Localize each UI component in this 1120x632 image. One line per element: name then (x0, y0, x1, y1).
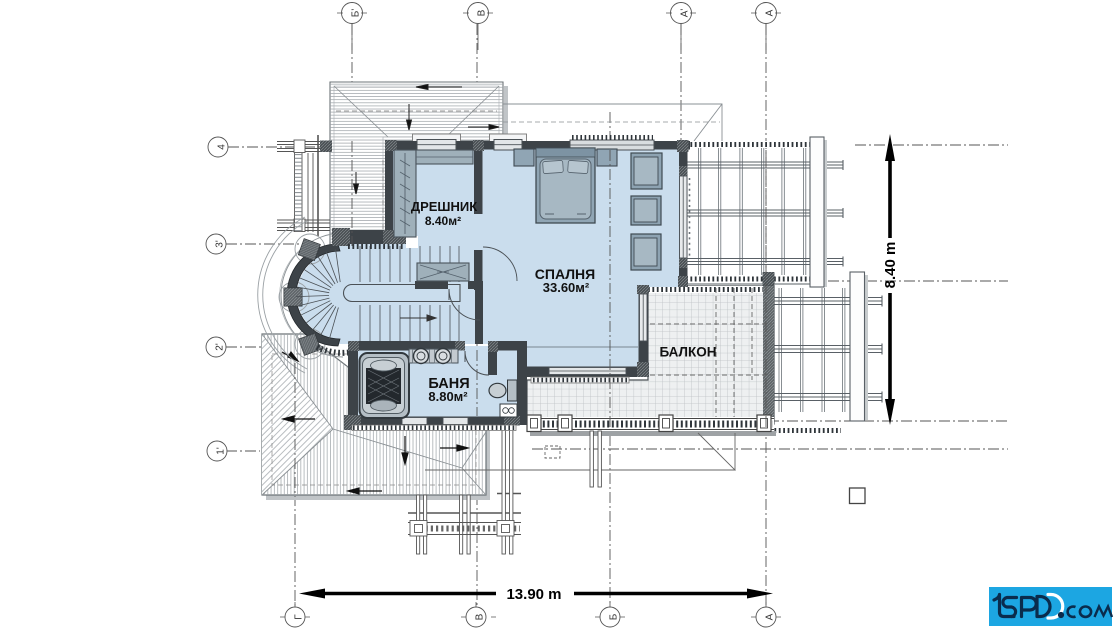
svg-text:В: В (477, 9, 488, 16)
svg-text:2': 2' (215, 343, 226, 351)
svg-text:А: А (765, 613, 776, 620)
svg-text:В: В (475, 613, 486, 620)
svg-text:8.40м²: 8.40м² (425, 214, 461, 228)
svg-text:Г: Г (294, 614, 305, 620)
svg-text:4: 4 (217, 144, 228, 150)
svg-text:8.40 m: 8.40 m (882, 242, 899, 289)
svg-text:ДРЕШНИК: ДРЕШНИК (411, 199, 477, 214)
svg-text:13.90 m: 13.90 m (506, 586, 561, 603)
svg-text:8.80м²: 8.80м² (428, 389, 468, 404)
svg-text:А: А (765, 9, 776, 16)
svg-text:А': А' (680, 9, 691, 18)
svg-text:БАЛКОН: БАЛКОН (659, 345, 716, 360)
svg-text:Б': Б' (351, 9, 362, 18)
svg-text:Б: Б (609, 613, 620, 620)
svg-text:3': 3' (215, 240, 226, 248)
svg-text:33.60м²: 33.60м² (543, 280, 590, 295)
svg-text:1': 1' (216, 447, 227, 455)
